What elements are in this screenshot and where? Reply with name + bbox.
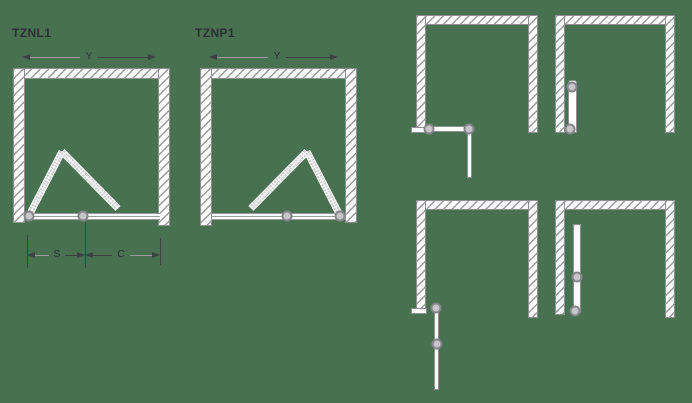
- wall-left: [416, 200, 426, 314]
- extension-line: [160, 238, 161, 265]
- wall-top: [13, 68, 170, 79]
- wall-top: [555, 200, 675, 210]
- dim-arrow-left-icon: [27, 252, 35, 258]
- wall-right: [665, 200, 675, 318]
- door-panel-inner: [304, 149, 343, 216]
- dim-arrow-left-icon: [22, 54, 30, 60]
- wall-top: [416, 15, 538, 25]
- dim-arrow-right-icon: [77, 252, 85, 258]
- dim-arrow-right-icon: [148, 54, 156, 60]
- wall-top: [200, 68, 357, 79]
- hinge-icon: [424, 124, 435, 135]
- dim-line-c-left: [93, 255, 112, 256]
- door-panel-outer: [60, 149, 121, 211]
- dim-label-s: S: [54, 250, 61, 260]
- hinge-icon: [570, 306, 581, 317]
- dim-line-s-left: [35, 255, 49, 256]
- dim-arrow-left-icon: [85, 252, 93, 258]
- wall-left: [555, 15, 565, 133]
- wall-right: [345, 68, 357, 223]
- door-leaf-open: [467, 131, 472, 178]
- door-leaf-closed: [573, 224, 581, 313]
- dim-line-y-right: [286, 57, 330, 58]
- hinge-icon: [78, 211, 89, 222]
- hinge-icon: [572, 272, 583, 283]
- hinge-icon: [335, 211, 346, 222]
- dim-label-y: Y: [86, 52, 93, 62]
- wall-left: [200, 68, 212, 226]
- hinge-icon: [565, 124, 576, 135]
- wall-end-cap: [411, 308, 427, 314]
- door-rail: [212, 213, 345, 220]
- wall-right: [528, 200, 538, 318]
- technical-drawing: TZNL1 Y S C TZNP1: [0, 0, 692, 403]
- diagram-title-tznp1: TZNP1: [195, 26, 235, 40]
- wall-top: [416, 200, 538, 210]
- wall-top: [555, 15, 675, 25]
- wall-left: [13, 68, 25, 223]
- hinge-icon: [431, 303, 442, 314]
- dim-line-y-left: [217, 57, 268, 58]
- hinge-icon: [432, 339, 443, 350]
- dim-arrow-right-icon: [330, 54, 338, 60]
- extension-line: [85, 222, 86, 268]
- door-leaf-open: [434, 310, 439, 390]
- dim-arrow-right-icon: [152, 252, 160, 258]
- dim-line-c-right: [130, 255, 152, 256]
- door-panel-inner: [26, 149, 65, 216]
- wall-right: [528, 15, 538, 133]
- door-panel-outer: [248, 149, 309, 211]
- wall-right: [158, 68, 170, 226]
- dim-line-s-right: [65, 255, 77, 256]
- wall-left: [555, 200, 565, 315]
- door-rail: [25, 213, 160, 220]
- dim-line-y-left: [30, 57, 80, 58]
- hinge-icon: [24, 211, 35, 222]
- diagram-title-tznl1: TZNL1: [12, 26, 51, 40]
- hinge-icon: [464, 124, 475, 135]
- wall-right: [665, 15, 675, 133]
- dim-line-y-right: [97, 57, 148, 58]
- dim-label-c: C: [117, 250, 124, 260]
- dim-label-y: Y: [274, 52, 281, 62]
- wall-left: [416, 15, 426, 131]
- hinge-icon: [282, 211, 293, 222]
- hinge-icon: [567, 82, 578, 93]
- dim-arrow-left-icon: [209, 54, 217, 60]
